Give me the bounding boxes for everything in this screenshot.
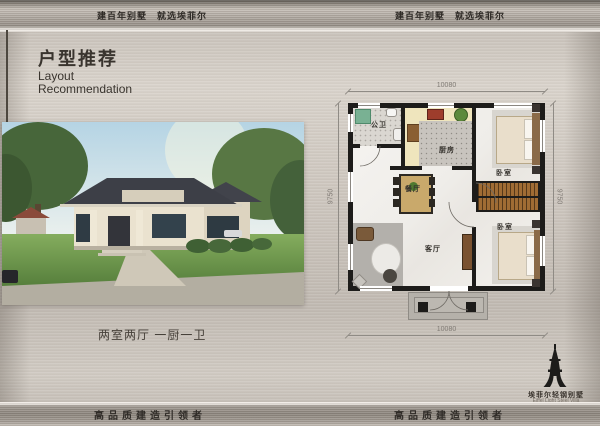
header-slogan-right: 建百年别墅 就选埃菲尔 [375,9,525,22]
brochure-page: 建百年别墅 就选埃菲尔 建百年别墅 就选埃菲尔 户型推荐 Layout Reco… [0,0,600,426]
page-title-en-line1: Layout [38,69,74,83]
room-label-dining: 餐厅 [396,184,430,194]
header-slogan-left: 建百年别墅 就选埃菲尔 [77,9,227,22]
page-title: 户型推荐 [38,45,118,71]
room-label-living: 客厅 [416,244,450,254]
footer-slogan-left: 高品质建造引领者 [70,407,230,422]
villa-photo [2,122,304,305]
title-accent-line [6,30,8,122]
photo-car-dark [2,270,18,283]
photo-far-house [16,218,46,236]
room-label-bedroom-top: 卧室 [487,168,521,178]
photo-car-white [224,230,242,237]
layout-caption: 两室两厅 一厨一卫 [98,326,206,343]
page-title-en-line2: Recommendation [38,82,132,96]
footer-slogan-right: 高品质建造引领者 [370,407,530,422]
room-label-bathroom: 公卫 [362,120,396,130]
eiffel-tower-logo-icon [541,344,569,388]
room-label-bedroom-bottom: 卧室 [488,222,522,232]
room-label-kitchen: 厨房 [430,145,464,155]
